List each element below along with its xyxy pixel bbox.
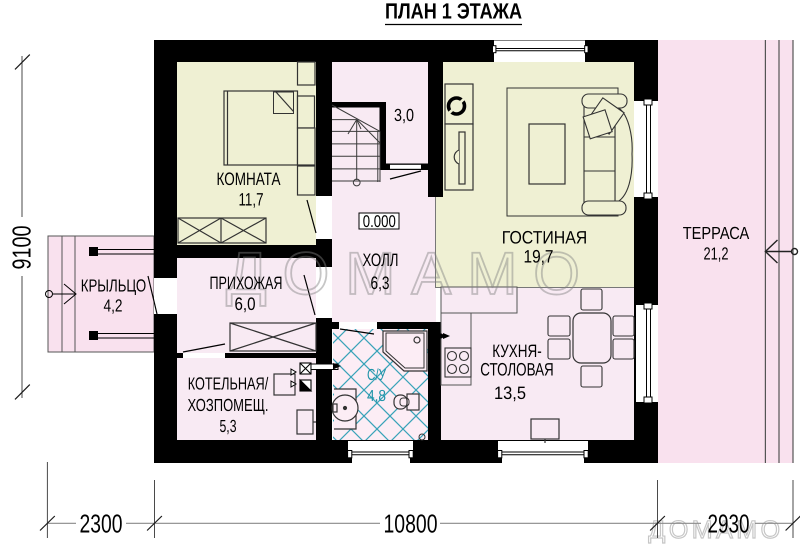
svg-text:КРЫЛЬЦО: КРЫЛЬЦО: [81, 276, 147, 296]
svg-text:ХОЛЛ: ХОЛЛ: [363, 250, 399, 270]
svg-text:4,2: 4,2: [104, 296, 123, 316]
svg-text:ГОСТИНАЯ: ГОСТИНАЯ: [502, 228, 588, 248]
svg-text:3,0: 3,0: [394, 105, 414, 125]
svg-text:КОМНАТА: КОМНАТА: [217, 169, 281, 189]
svg-text:6,3: 6,3: [371, 273, 390, 293]
svg-text:ТЕРРАСА: ТЕРРАСА: [683, 223, 750, 243]
svg-text:21,2: 21,2: [704, 244, 729, 264]
svg-text:2930: 2930: [708, 509, 750, 539]
svg-text:КУХНЯ-: КУХНЯ-: [492, 341, 542, 361]
svg-text:КОТЕЛЬНАЯ/: КОТЕЛЬНАЯ/: [188, 374, 269, 394]
svg-text:ХОЗПОМЕЩ.: ХОЗПОМЕЩ.: [188, 395, 269, 415]
svg-text:ПЛАН 1 ЭТАЖА: ПЛАН 1 ЭТАЖА: [385, 0, 522, 24]
svg-text:2300: 2300: [80, 509, 123, 539]
svg-text:11,7: 11,7: [239, 190, 264, 210]
svg-text:С/У: С/У: [367, 367, 387, 384]
svg-text:ПРИХОЖАЯ: ПРИХОЖАЯ: [210, 273, 283, 293]
svg-text:19,7: 19,7: [524, 247, 554, 267]
svg-text:0.000: 0.000: [363, 212, 396, 231]
svg-text:4,8: 4,8: [367, 388, 386, 405]
svg-text:СТОЛОВАЯ: СТОЛОВАЯ: [480, 360, 554, 380]
svg-text:9100: 9100: [7, 226, 37, 270]
svg-text:13,5: 13,5: [494, 383, 526, 403]
svg-text:10800: 10800: [384, 509, 438, 539]
svg-text:6,0: 6,0: [235, 294, 256, 314]
svg-text:5,3: 5,3: [220, 416, 237, 436]
